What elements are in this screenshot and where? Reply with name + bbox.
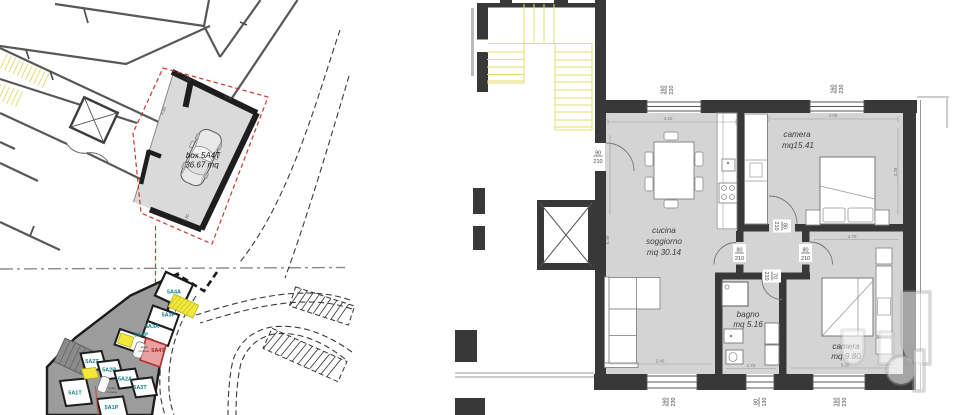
svg-text:mq 30.14: mq 30.14 [647,248,682,257]
svg-text:160: 160 [834,398,840,407]
svg-text:230: 230 [842,398,848,407]
svg-text:4.70: 4.70 [848,234,857,239]
svg-text:5.30: 5.30 [605,235,610,244]
svg-text:210: 210 [735,256,744,262]
svg-text:mq 5.16: mq 5.16 [733,320,763,329]
svg-text:camera: camera [783,130,811,139]
svg-text:soggiorno: soggiorno [646,237,682,246]
svg-text:160: 160 [663,398,669,407]
svg-text:5A1P: 5A1P [105,405,119,411]
svg-text:3.40: 3.40 [656,359,665,364]
svg-text:90: 90 [595,151,601,157]
svg-text:comune: comune [107,390,118,394]
svg-text:230: 230 [839,85,845,94]
svg-text:5A2P: 5A2P [102,368,116,374]
svg-text:80: 80 [754,399,760,405]
svg-text:1.75: 1.75 [747,363,756,368]
svg-text:cucina: cucina [652,226,676,235]
svg-text:70: 70 [772,273,778,279]
svg-text:80: 80 [737,248,743,254]
svg-text:160: 160 [661,86,667,95]
svg-text:box 5A4T: box 5A4T [186,151,221,160]
svg-text:230: 230 [671,398,677,407]
svg-text:3.28: 3.28 [893,167,898,176]
svg-text:80: 80 [782,223,788,229]
svg-text:5A4T: 5A4T [151,348,165,354]
svg-text:4.05: 4.05 [829,113,838,118]
svg-text:4.10: 4.10 [664,116,673,121]
svg-text:5A2T: 5A2T [85,359,99,365]
svg-text:5A3T: 5A3T [133,385,147,391]
svg-text:5A3P: 5A3P [162,313,176,319]
svg-text:5A3A: 5A3A [145,324,159,330]
svg-text:220: 220 [669,86,675,95]
svg-text:36.67 mq: 36.67 mq [185,161,219,170]
svg-text:160: 160 [831,85,837,94]
svg-text:comune: comune [139,349,150,353]
svg-text:210: 210 [594,159,603,165]
svg-text:bagno: bagno [737,310,760,319]
svg-text:80: 80 [803,248,809,254]
svg-text:5A4A: 5A4A [167,290,181,296]
svg-text:5A1T: 5A1T [68,391,82,397]
svg-text:5A4P: 5A4P [134,333,148,339]
svg-text:mq15.41: mq15.41 [782,141,814,150]
svg-text:5A2A: 5A2A [118,377,132,383]
svg-text:130: 130 [762,398,768,407]
svg-text:210: 210 [773,222,779,231]
svg-text:210: 210 [763,272,769,281]
svg-text:210: 210 [801,256,810,262]
